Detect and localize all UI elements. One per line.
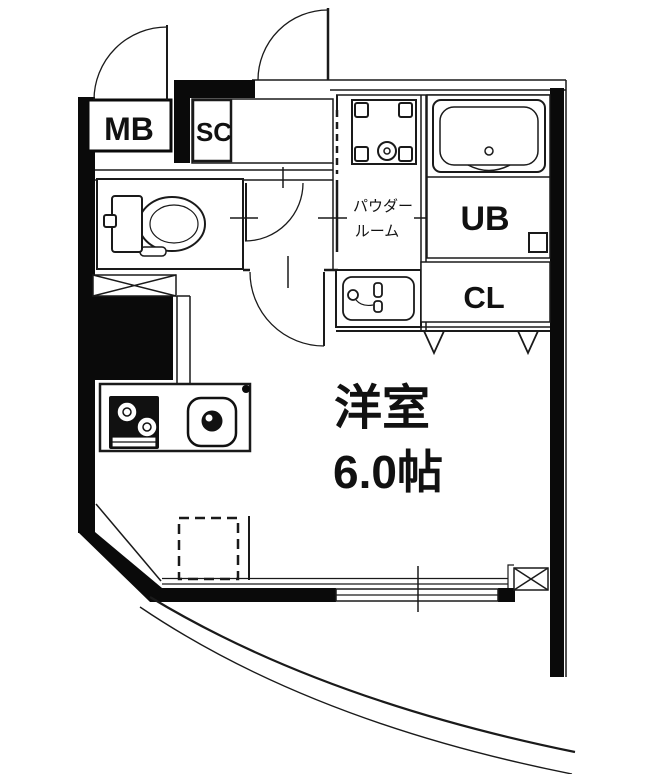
wall-bottom (150, 588, 336, 602)
label-meter-box: MB (104, 111, 154, 147)
floorplan: MB SC パウダー ルーム UB CL 洋室 6.0帖 (0, 0, 653, 774)
wall-left (78, 97, 95, 533)
pipe-space-hatch-left (93, 275, 176, 296)
wall-shaft-block (93, 296, 173, 380)
meter-box-door (94, 25, 167, 100)
kitchen-stove (109, 396, 159, 449)
counter-corner-dot (242, 385, 250, 393)
label-powder-room-line2: ルーム (355, 223, 400, 240)
washbasin-vanity (336, 270, 421, 327)
kitchen-partition-wall (177, 296, 190, 384)
label-western-room-size: 6.0帖 (333, 446, 443, 498)
wall-bottom-right-segment (498, 588, 515, 602)
toilet-fixture (104, 196, 205, 256)
label-powder-room-line1: パウダー (353, 198, 413, 215)
label-unit-bath: UB (460, 200, 509, 238)
site-boundary-curves (140, 597, 575, 774)
closet-door-mark (424, 331, 444, 353)
main-room-door (250, 272, 324, 346)
wall-mb-sc (174, 98, 190, 163)
wall-top-entrance (174, 80, 255, 98)
pipe-space-hatch-bottom-right (508, 565, 548, 590)
refrigerator-space (179, 516, 249, 580)
label-closet: CL (463, 280, 504, 315)
closet-door-mark (518, 331, 538, 353)
washing-machine-pan (352, 100, 416, 164)
toilet-room (97, 179, 243, 269)
label-western-room-name: 洋室 (334, 382, 430, 435)
kitchen-sink (188, 398, 236, 446)
floorplan-drawing: MB SC パウダー ルーム UB CL 洋室 6.0帖 (0, 0, 653, 774)
toilet-door (245, 183, 303, 241)
entrance-door (258, 8, 328, 80)
label-shoe-closet: SC (196, 117, 232, 147)
wall-right (550, 88, 564, 677)
